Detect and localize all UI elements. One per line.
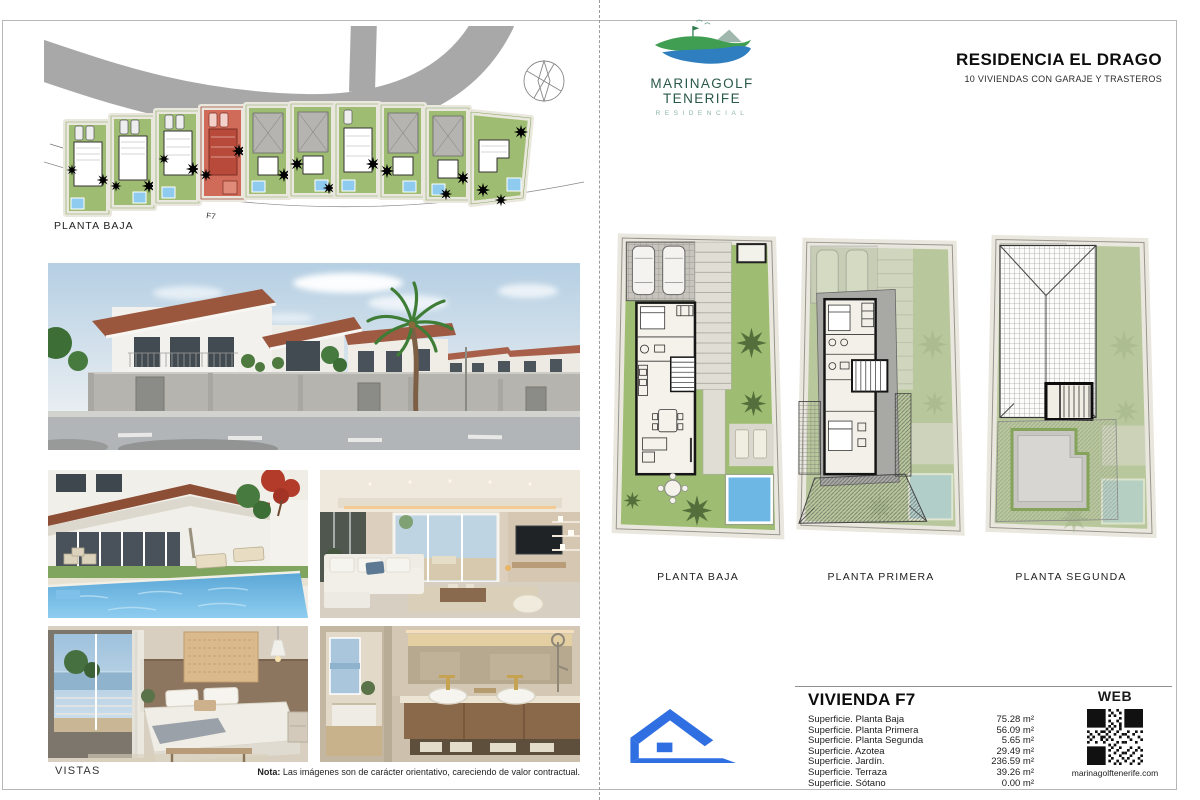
brochure-sheet: F7 PLANTA BAJA [0, 0, 1200, 800]
vanity [404, 703, 580, 739]
floorplan-segunda-drawing [984, 232, 1159, 560]
floorplan-planta-primera: PLANTA PRIMERA [793, 232, 969, 583]
surface-label: Superficie. Planta Baja [808, 715, 904, 726]
project-subtitle: 10 VIVIENDAS CON GARAJE Y TRASTEROS [800, 74, 1162, 84]
floorplan-planta-segunda: PLANTA SEGUNDA [983, 232, 1159, 583]
project-header: RESIDENCIA EL DRAGO 10 VIVIENDAS CON GAR… [800, 50, 1162, 84]
note-text: Las imágenes son de carácter orientativo… [280, 767, 580, 777]
house-outline-icon [622, 694, 742, 778]
exterior-render-image [48, 263, 580, 450]
surface-row: Superficie. Planta Baja75.28 m² [808, 715, 1034, 726]
floorplan-primera-drawing [795, 232, 967, 560]
housing-units [64, 104, 531, 214]
ocean-view-window [48, 630, 144, 758]
unit-title: VIVIENDA F7 [808, 690, 1034, 710]
nightstand [288, 712, 308, 742]
pool [727, 476, 771, 522]
site-plan-image: F7 PLANTA BAJA [44, 26, 584, 232]
vistas-label: VISTAS [55, 765, 101, 777]
unit-marker-f7: F7 [206, 211, 217, 221]
floorplan-label-segunda: PLANTA SEGUNDA [1015, 571, 1126, 583]
info-divider-line [795, 686, 1172, 687]
site-plan-label: PLANTA BAJA [54, 220, 134, 232]
surface-label: Superficie. Sótano [808, 779, 886, 790]
surface-row: Superficie. Terraza39.26 m² [808, 768, 1034, 779]
surface-value: 0.00 m² [1002, 779, 1034, 790]
qr-code-icon [1087, 709, 1143, 765]
floorplan-label-baja: PLANTA BAJA [657, 571, 739, 583]
logo-subtitle: RESIDENCIAL [612, 110, 792, 117]
coffee-table [440, 588, 486, 602]
surface-label: Superficie. Terraza [808, 768, 887, 779]
floorplan-baja-drawing [610, 232, 787, 560]
web-panel: WEB marinagolftenerife.com [1056, 688, 1174, 778]
doorway-view [320, 626, 392, 762]
living-room-photo [320, 470, 580, 618]
surface-row: Superficie. Sótano0.00 m² [808, 779, 1034, 790]
logo-title: MARINAGOLF TENERIFE [612, 76, 792, 106]
surface-table: Superficie. Planta Baja75.28 m² Superfic… [808, 715, 1034, 789]
surface-value: 75.28 m² [997, 715, 1035, 726]
unit-info-panel: VIVIENDA F7 Superficie. Planta Baja75.28… [808, 690, 1034, 789]
fold-dashed-line [599, 0, 600, 800]
brand-logo: MARINAGOLF TENERIFE RESIDENCIAL [612, 16, 792, 117]
compass-icon [524, 61, 564, 101]
disclaimer-note: Nota: Las imágenes son de carácter orien… [160, 767, 580, 777]
road [44, 26, 496, 114]
project-title: RESIDENCIA EL DRAGO [800, 50, 1162, 70]
note-bold: Nota: [257, 767, 280, 777]
logo-waves-icon [647, 16, 757, 74]
floorplan-label-primera: PLANTA PRIMERA [827, 571, 934, 583]
bathroom-photo [320, 626, 580, 762]
web-title: WEB [1056, 688, 1174, 704]
web-url: marinagolftenerife.com [1056, 768, 1174, 778]
pool-photo [48, 470, 308, 618]
surface-value: 39.26 m² [997, 768, 1035, 779]
bedroom-photo [48, 626, 308, 762]
floorplan-planta-baja: PLANTA BAJA [608, 232, 788, 583]
